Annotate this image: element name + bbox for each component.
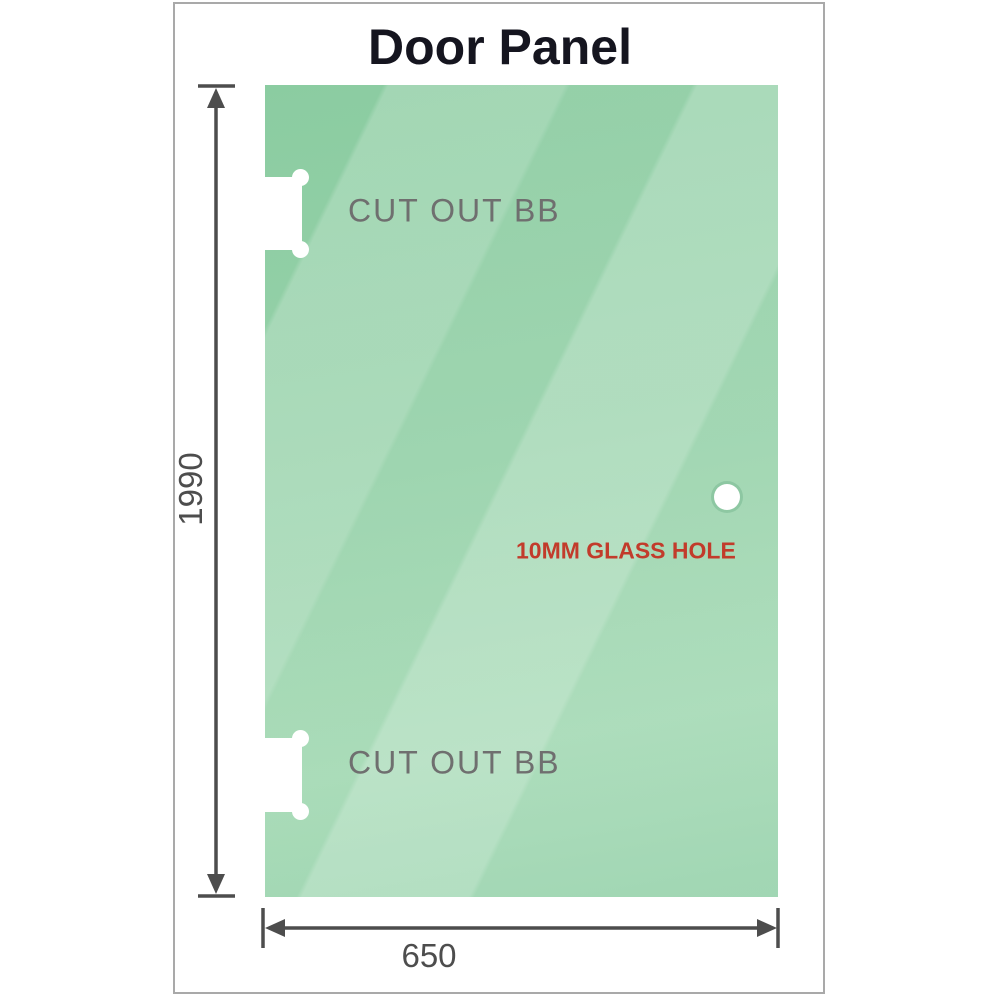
height-dim-arrow-up <box>207 88 225 108</box>
width-dimension-label: 650 <box>401 937 456 975</box>
height-dim-arrow-down <box>207 874 225 894</box>
cutout-top-label: CUT OUT BB <box>348 193 561 230</box>
glass-hole-label: 10MM GLASS HOLE <box>516 538 736 565</box>
dimension-lines <box>0 0 1000 1000</box>
height-dimension-label: 1990 <box>172 452 210 525</box>
door-panel-diagram: Door Panel 1990 650 CUT OUT BB CUT OUT B… <box>0 0 1000 1000</box>
width-dim-arrow-right <box>757 919 777 937</box>
cutout-bottom-label: CUT OUT BB <box>348 745 561 782</box>
width-dim-arrow-left <box>265 919 285 937</box>
